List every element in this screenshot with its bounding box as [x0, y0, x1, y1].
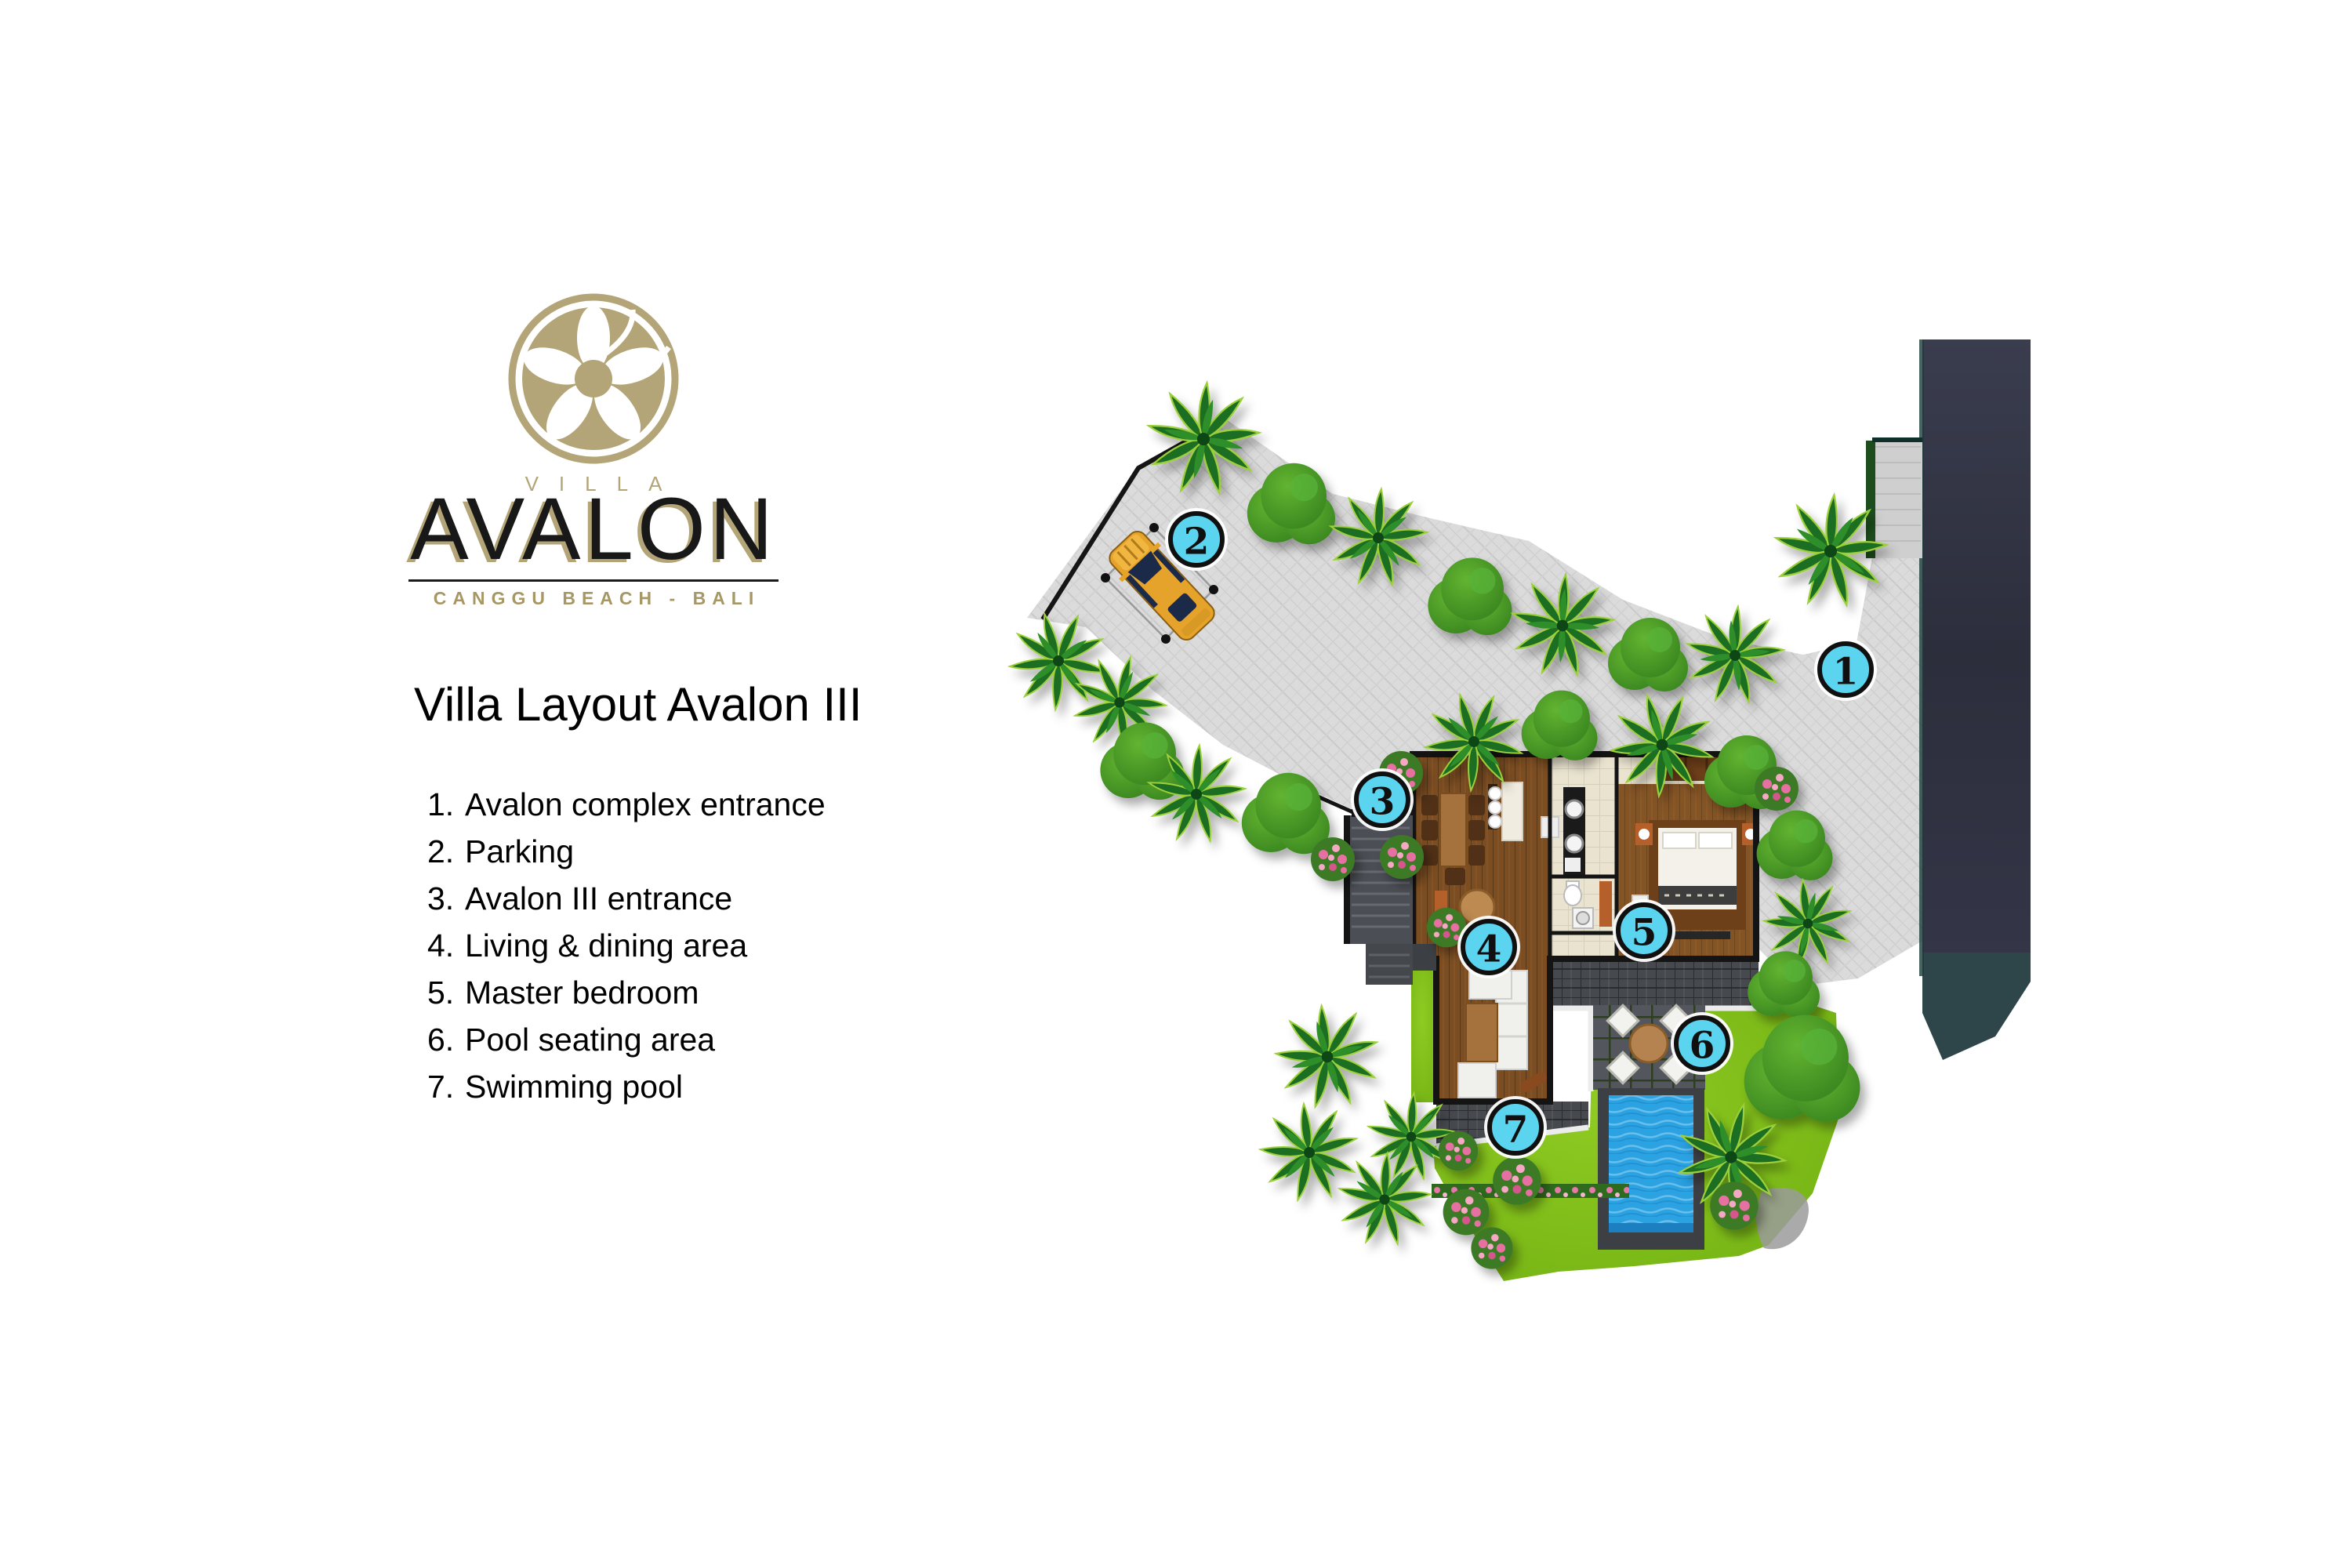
map-marker-7-number: 7 — [1503, 1109, 1529, 1152]
map-marker-4-number: 4 — [1476, 928, 1502, 971]
flower-bush-icon — [1380, 835, 1424, 879]
palm-tree-icon — [1243, 1086, 1376, 1219]
flower-bush-icon — [1443, 1189, 1490, 1236]
map-marker-5-number: 5 — [1632, 912, 1657, 955]
map-marker-1-number: 1 — [1833, 651, 1859, 694]
complex-entrance-road — [1919, 339, 2031, 1060]
map-marker-4: 4 — [1457, 916, 1520, 978]
map-marker-1: 1 — [1814, 638, 1877, 701]
map-marker-2: 2 — [1165, 508, 1228, 571]
flower-bush-icon — [1493, 1156, 1541, 1205]
site-plan-map: 1 2 3 4 5 6 7 — [0, 0, 2352, 1568]
map-marker-2-number: 2 — [1184, 521, 1210, 564]
outdoor-table — [1630, 1025, 1668, 1062]
boundary-wall — [1866, 437, 1922, 558]
palm-tree-icon — [1325, 1141, 1443, 1259]
flower-bush-icon — [1471, 1227, 1512, 1269]
map-marker-5: 5 — [1613, 899, 1675, 962]
map-marker-6-number: 6 — [1690, 1025, 1715, 1068]
map-marker-7: 7 — [1484, 1096, 1547, 1159]
flower-bush-icon — [1755, 767, 1798, 811]
flower-bush-icon — [1710, 1181, 1759, 1230]
map-marker-3: 3 — [1351, 768, 1414, 831]
flower-bush-icon — [1439, 1131, 1478, 1171]
hedge-strip — [1866, 441, 1875, 558]
rock-feature — [1756, 1188, 1809, 1249]
map-marker-6: 6 — [1671, 1012, 1733, 1075]
palm-tree-icon — [1258, 988, 1397, 1127]
flower-bush-icon — [1311, 837, 1355, 881]
map-marker-3-number: 3 — [1370, 781, 1396, 824]
villa-layout-page: VILLA AVALON CANGGU BEACH - BALI Villa L… — [0, 0, 2352, 1568]
